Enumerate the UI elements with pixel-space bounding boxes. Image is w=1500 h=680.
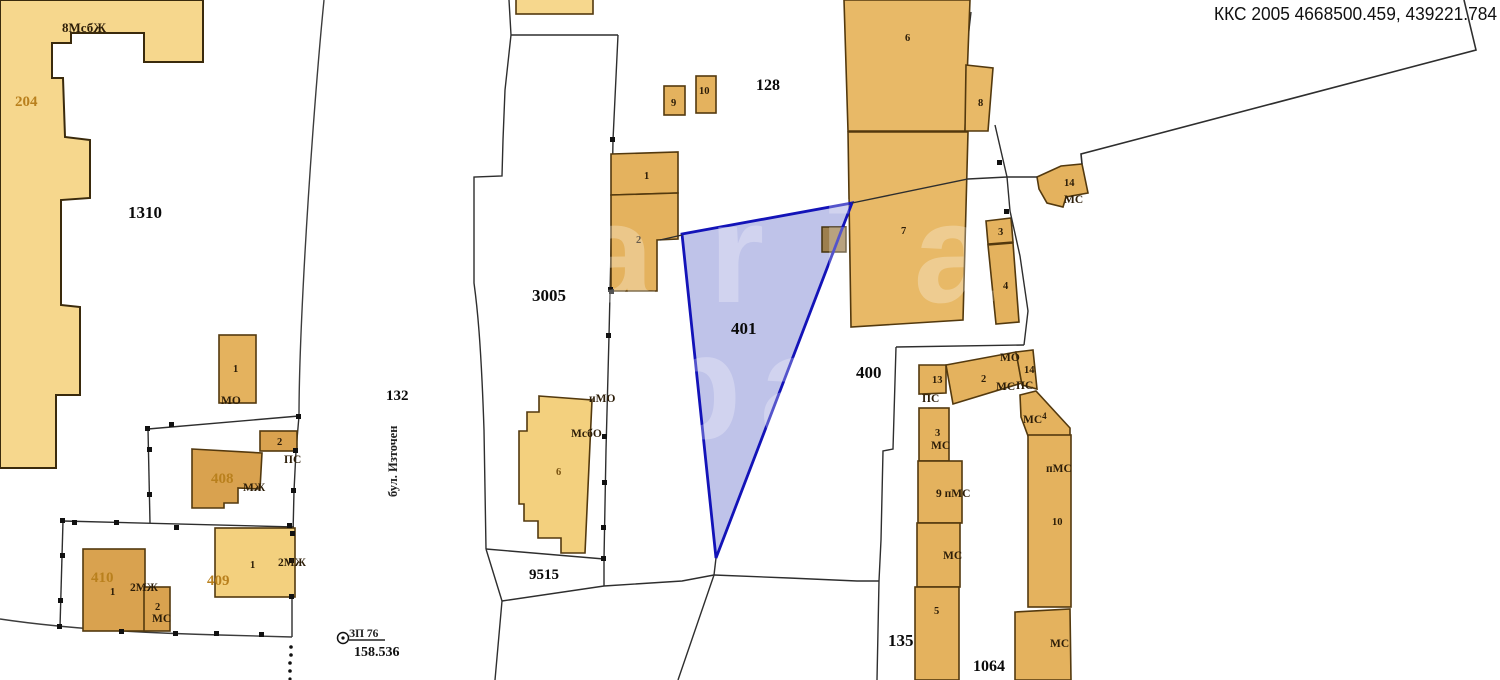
svg-text:1310: 1310 — [128, 203, 162, 222]
svg-text:6: 6 — [905, 33, 910, 44]
svg-text:2: 2 — [981, 374, 986, 385]
svg-text:3005: 3005 — [532, 286, 566, 305]
svg-text:128: 128 — [756, 77, 780, 94]
svg-text:МС: МС — [1064, 194, 1083, 206]
svg-text:400: 400 — [856, 363, 882, 382]
svg-text:2МЖ: 2МЖ — [278, 557, 307, 569]
svg-text:МсбО: МсбО — [571, 428, 602, 440]
svg-text:10: 10 — [1052, 517, 1063, 528]
svg-text:бул. Източен: бул. Източен — [386, 426, 400, 497]
svg-text:3: 3 — [935, 428, 940, 439]
svg-text:10: 10 — [699, 86, 710, 97]
svg-text:2: 2 — [636, 235, 641, 246]
svg-text:410: 410 — [91, 570, 114, 586]
svg-text:7: 7 — [901, 226, 906, 237]
svg-text:ККС 2005 4668500.459, 439221.7: ККС 2005 4668500.459, 439221.784 — [1214, 3, 1497, 24]
svg-text:1: 1 — [110, 587, 115, 598]
svg-text:9515: 9515 — [529, 567, 559, 583]
svg-text:408: 408 — [211, 471, 234, 487]
svg-text:14: 14 — [1024, 365, 1035, 376]
svg-text:1: 1 — [644, 171, 649, 182]
svg-text:МС: МС — [931, 440, 950, 452]
svg-text:1064: 1064 — [973, 658, 1005, 675]
svg-text:1: 1 — [250, 560, 255, 571]
svg-text:МО: МО — [1000, 352, 1020, 364]
svg-text:3: 3 — [998, 227, 1003, 238]
svg-text:ПС: ПС — [1016, 380, 1033, 392]
svg-text:МЖ: МЖ — [243, 482, 266, 494]
svg-text:1: 1 — [233, 364, 238, 375]
svg-text:ПС: ПС — [284, 454, 301, 466]
svg-text:13: 13 — [932, 375, 943, 386]
svg-text:135: 135 — [888, 631, 914, 650]
svg-text:иМО: иМО — [589, 393, 615, 405]
svg-text:6: 6 — [556, 467, 561, 478]
svg-text:МС: МС — [152, 613, 171, 625]
svg-text:ПС: ПС — [922, 393, 939, 405]
svg-text:409: 409 — [207, 573, 230, 589]
svg-text:204: 204 — [15, 94, 38, 110]
svg-text:2: 2 — [155, 602, 160, 613]
svg-text:8: 8 — [978, 98, 983, 109]
svg-text:4: 4 — [1003, 281, 1009, 292]
svg-text:МС: МС — [1050, 638, 1069, 650]
svg-text:пМС: пМС — [1046, 463, 1072, 475]
svg-text:14: 14 — [1064, 178, 1075, 189]
svg-text:9 пМС: 9 пМС — [936, 488, 970, 500]
svg-text:МС: МС — [996, 381, 1015, 393]
svg-text:2МЖ: 2МЖ — [130, 582, 159, 594]
svg-text:158.536: 158.536 — [354, 645, 400, 660]
svg-text:2: 2 — [277, 437, 282, 448]
svg-text:9: 9 — [671, 98, 676, 109]
svg-text:МС: МС — [943, 550, 962, 562]
svg-text:5: 5 — [934, 606, 939, 617]
svg-text:132: 132 — [386, 388, 409, 404]
svg-text:8МсбЖ: 8МсбЖ — [62, 20, 106, 35]
svg-text:МО: МО — [221, 395, 241, 407]
svg-text:ЗП 76: ЗП 76 — [349, 628, 379, 640]
svg-text:401: 401 — [731, 319, 757, 338]
